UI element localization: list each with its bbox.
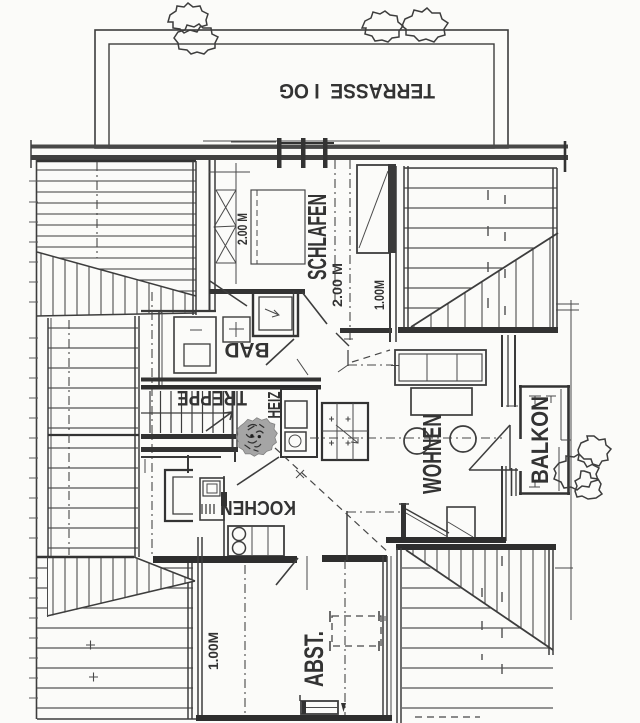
svg-text:KOCHEN: KOCHEN bbox=[220, 496, 296, 519]
svg-text:1.00M: 1.00M bbox=[206, 632, 221, 670]
svg-text:BAD: BAD bbox=[225, 338, 270, 362]
svg-text:TERRASSE I OG: TERRASSE I OG bbox=[279, 79, 435, 102]
svg-text:SCHLAFEN: SCHLAFEN bbox=[302, 194, 332, 280]
svg-text:ABST.: ABST. bbox=[299, 631, 329, 687]
svg-text:BALKON: BALKON bbox=[527, 396, 554, 484]
svg-text:WOHNEN: WOHNEN bbox=[417, 414, 447, 494]
svg-text:1.00M: 1.00M bbox=[372, 280, 387, 310]
svg-text:2.00 M: 2.00 M bbox=[329, 263, 345, 307]
svg-text:2.00 M: 2.00 M bbox=[235, 213, 250, 245]
